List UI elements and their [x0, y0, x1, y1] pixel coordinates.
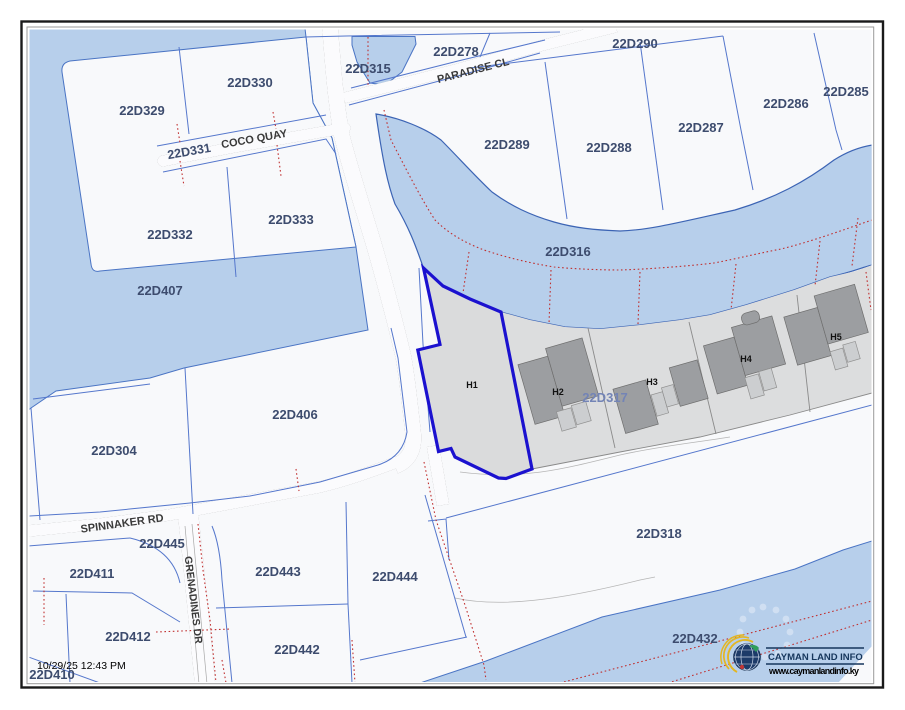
svg-text:H2: H2: [552, 387, 564, 397]
svg-text:H4: H4: [740, 354, 752, 364]
svg-text:www.caymanlandinfo.ky: www.caymanlandinfo.ky: [768, 666, 859, 676]
svg-text:10/29/25 12:43 PM: 10/29/25 12:43 PM: [37, 660, 126, 672]
svg-text:22D412: 22D412: [105, 629, 151, 644]
svg-text:22D315: 22D315: [345, 61, 391, 76]
svg-text:22D287: 22D287: [678, 120, 724, 135]
svg-text:22D285: 22D285: [823, 84, 869, 99]
svg-text:22D407: 22D407: [137, 283, 183, 298]
svg-text:22D443: 22D443: [255, 564, 301, 579]
svg-text:22D289: 22D289: [484, 137, 530, 152]
svg-text:22D317: 22D317: [582, 390, 628, 405]
svg-text:22D445: 22D445: [139, 536, 185, 551]
svg-text:22D286: 22D286: [763, 96, 809, 111]
svg-text:22D329: 22D329: [119, 103, 165, 118]
svg-text:22D432: 22D432: [672, 631, 718, 646]
svg-text:22D411: 22D411: [70, 566, 115, 581]
svg-text:22D316: 22D316: [545, 244, 591, 259]
svg-text:22D290: 22D290: [612, 36, 658, 51]
svg-text:22D288: 22D288: [586, 140, 632, 155]
svg-text:22D304: 22D304: [91, 443, 137, 458]
svg-text:H1: H1: [466, 380, 478, 390]
svg-text:CAYMAN LAND INFO: CAYMAN LAND INFO: [768, 652, 864, 663]
svg-text:H5: H5: [830, 332, 842, 342]
svg-text:22D333: 22D333: [268, 212, 314, 227]
svg-text:22D318: 22D318: [636, 526, 682, 541]
svg-text:22D444: 22D444: [372, 569, 418, 584]
svg-text:22D442: 22D442: [274, 642, 320, 657]
svg-text:22D406: 22D406: [272, 407, 318, 422]
svg-text:22D278: 22D278: [433, 44, 479, 59]
svg-text:22D332: 22D332: [147, 227, 193, 242]
svg-text:H3: H3: [646, 377, 658, 387]
svg-text:22D330: 22D330: [227, 75, 273, 90]
